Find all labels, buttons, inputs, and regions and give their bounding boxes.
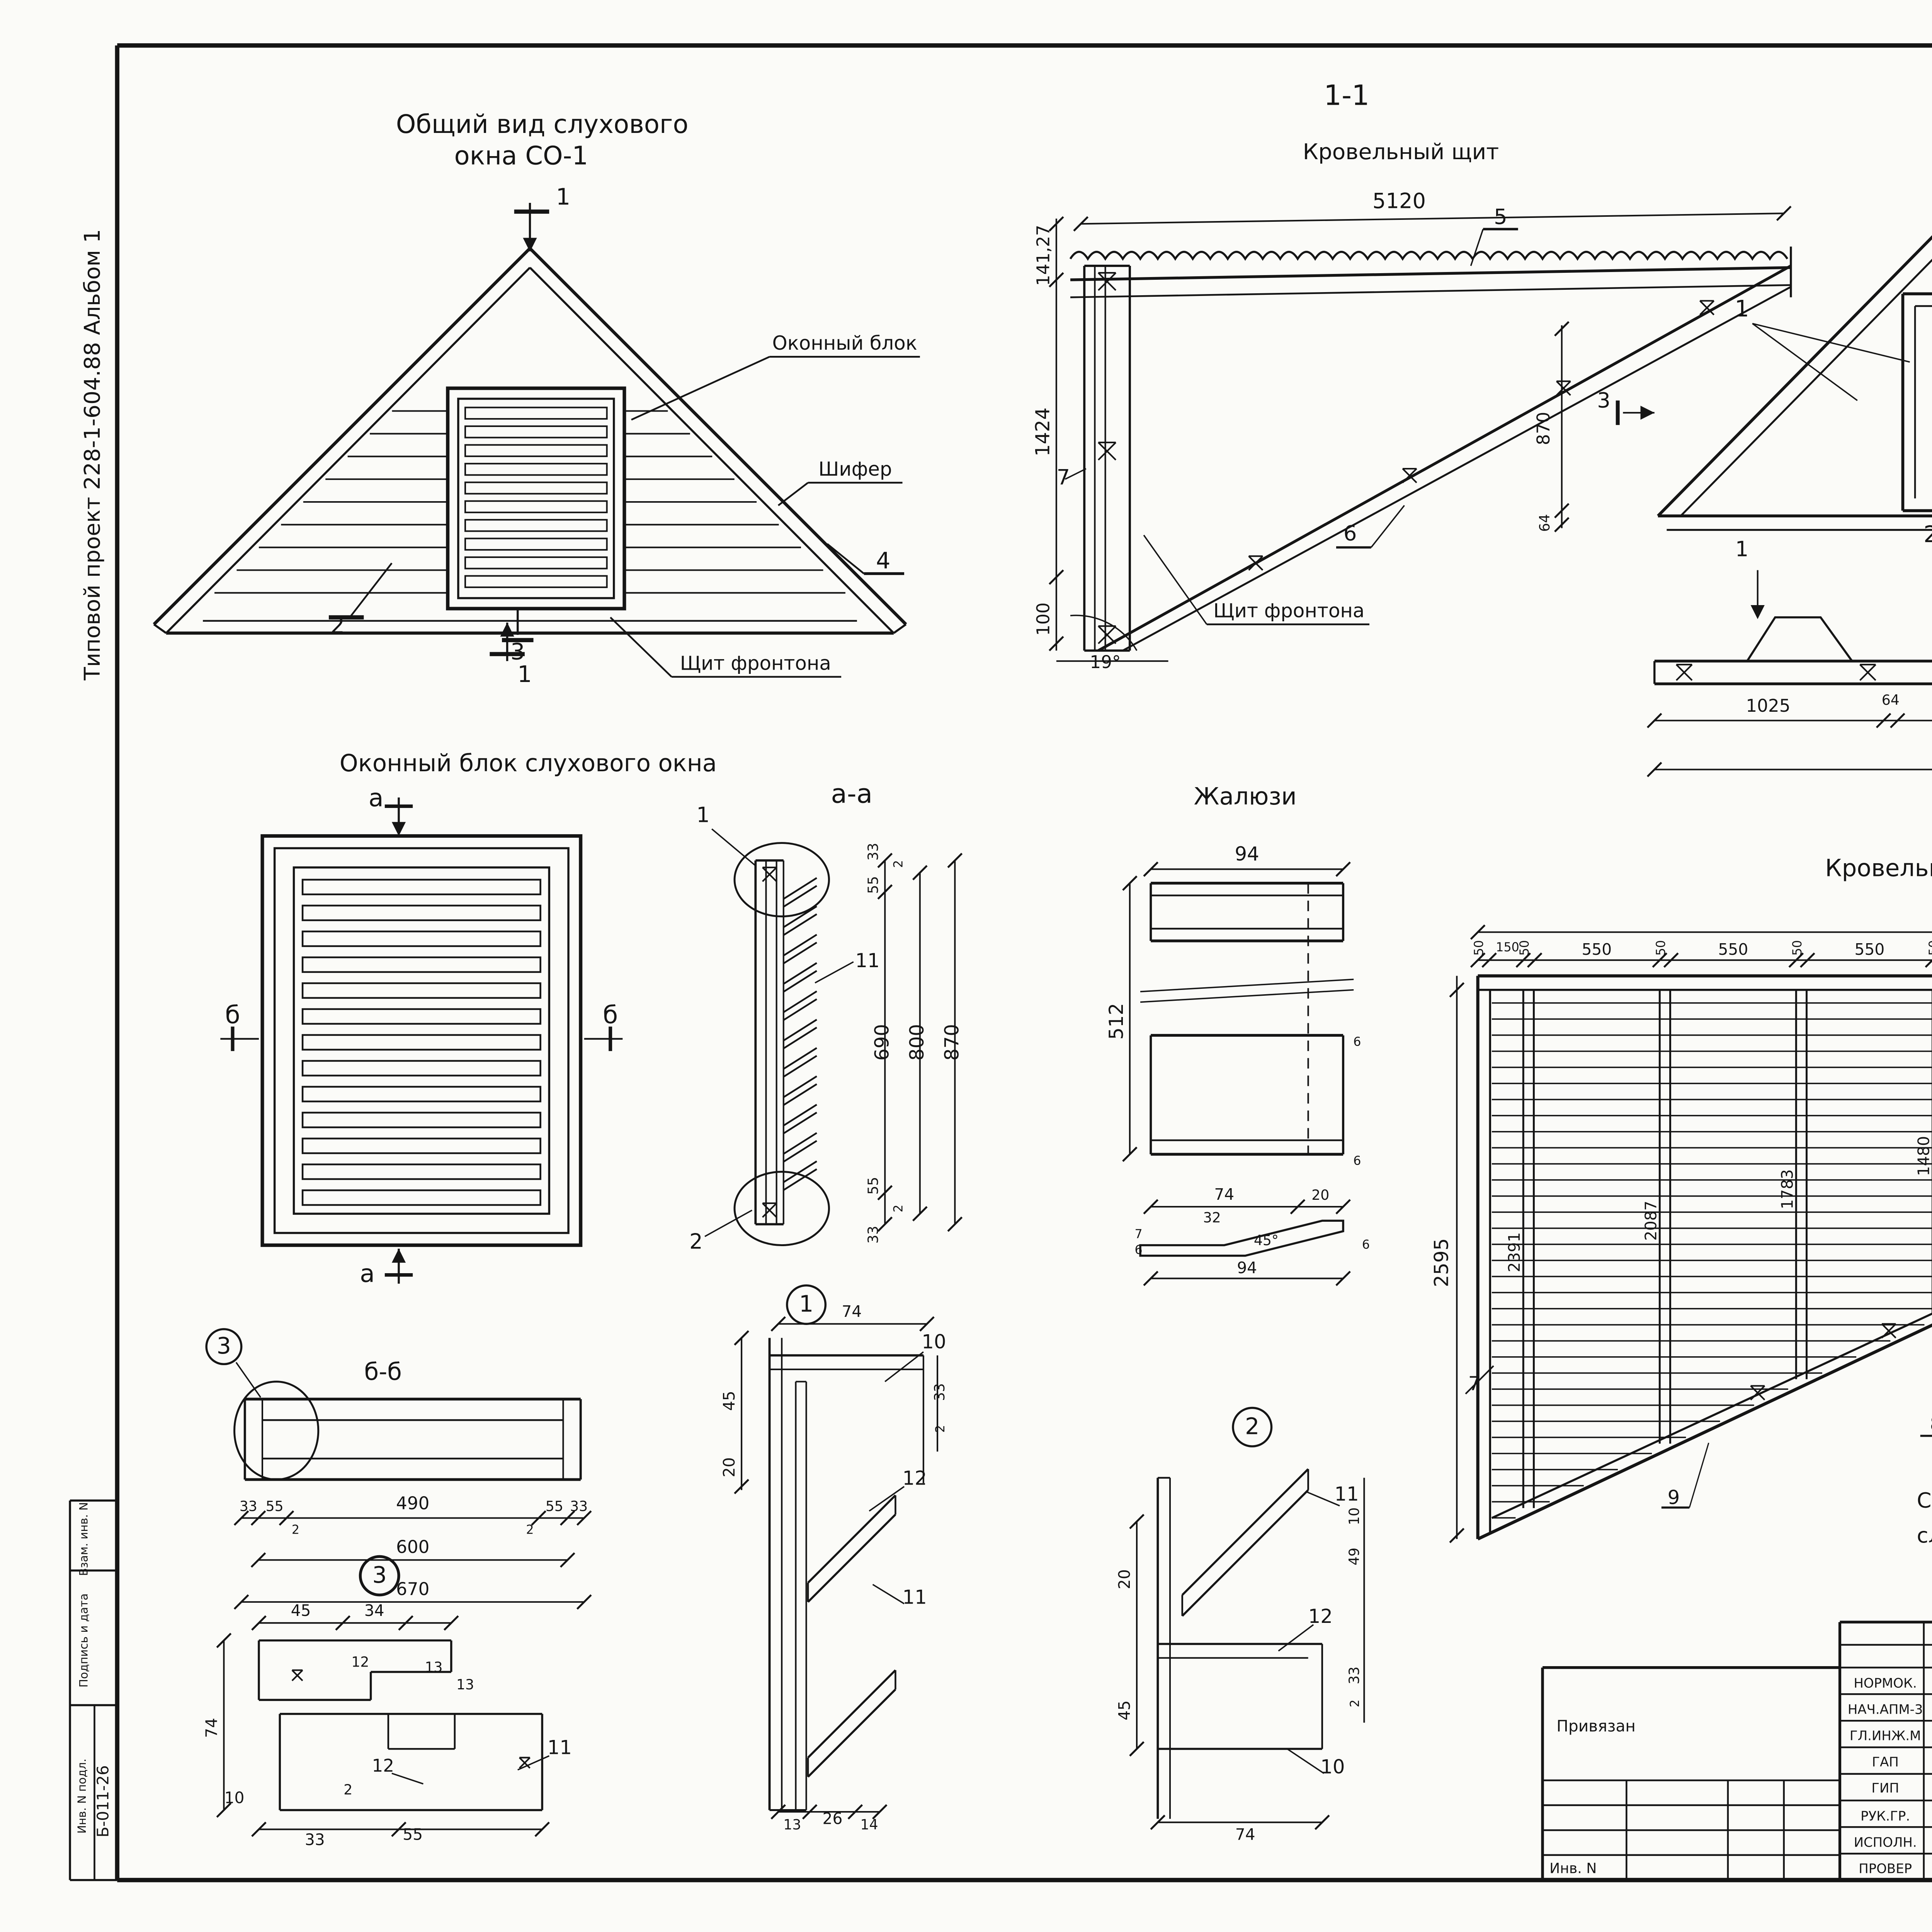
dim-label: 26: [823, 1810, 843, 1828]
dim-label: 20: [1311, 1187, 1329, 1203]
dim-label: 94: [1235, 843, 1259, 865]
roof-panel-title: Кровельный щит слухового окна ОС-1: [1825, 855, 1932, 882]
roof-panel-callout-label: Кровельный щит: [1303, 139, 1499, 165]
tb-role-3: ГАП: [1872, 1754, 1898, 1770]
dim-label: а: [360, 1259, 375, 1288]
dim-label: 2: [892, 1204, 906, 1212]
dim-label: б: [603, 1000, 618, 1029]
dim-label: 2: [892, 860, 906, 868]
dim-label: 10: [224, 1788, 245, 1807]
dim-label: 94: [1237, 1259, 1257, 1277]
tb-role-4: ГИП: [1871, 1781, 1899, 1796]
titleblock-inv-label: Инв. N: [1549, 1860, 1597, 1876]
dim-label: 50: [1791, 940, 1804, 956]
dim-label: 6: [1362, 1238, 1370, 1252]
dim-label: а: [369, 784, 384, 812]
dim-label: 49: [1346, 1548, 1362, 1565]
dim-label: 870: [1533, 412, 1554, 445]
dim-label: 11: [548, 1736, 572, 1759]
dim-label: 8: [1930, 1413, 1932, 1435]
dim-label: 45: [1115, 1701, 1134, 1721]
dim-label: 7: [1134, 1227, 1142, 1241]
drawing-sheet: 25 Типовой проект 228-1-604.88 Альбом 1 …: [0, 0, 1932, 1932]
dim-label: 33: [931, 1383, 948, 1401]
dim-label: 2595: [1430, 1238, 1453, 1287]
dim-label: 550: [1855, 940, 1885, 959]
dim-label: 12: [1308, 1605, 1333, 1628]
dim-label: 2: [344, 1781, 352, 1798]
margin-cell-replace-inv: Взам. инв. N: [77, 1502, 90, 1576]
dim-label: 670: [396, 1579, 429, 1599]
dim-label: 55: [546, 1498, 563, 1515]
drawing-geometry: [70, 46, 1932, 1913]
dim-label: 12: [351, 1653, 369, 1670]
dim-label: 12: [372, 1755, 394, 1776]
dim-label: 150: [1496, 940, 1519, 954]
blueprint-svg: 25 Типовой проект 228-1-604.88 Альбом 1 …: [0, 0, 1932, 1932]
dim-label: 50: [1518, 940, 1532, 956]
dim-label: 13: [783, 1816, 801, 1833]
dim-label: 55: [865, 876, 881, 894]
dim-label: 2: [689, 1230, 703, 1254]
tech-req-line3: Спецификацию расхода древесины на: [1917, 1488, 1932, 1512]
dim-label: 74: [842, 1302, 862, 1321]
general-view-title-2: окна СО-1: [454, 141, 588, 170]
dim-label: б: [225, 1000, 240, 1029]
fronton-callout-label-11: Щит фронтона: [1213, 600, 1364, 622]
dim-label: 1783: [1778, 1169, 1796, 1209]
dim-label: 2391: [1505, 1232, 1524, 1272]
dim-label: 600: [396, 1537, 429, 1557]
gv-fronton-label: Щит фронтона: [680, 652, 831, 674]
dim-label: 2: [526, 1523, 534, 1537]
dim-label: 11: [1334, 1483, 1359, 1505]
dim-label: 4: [876, 547, 890, 574]
dim-label: 11: [903, 1586, 927, 1608]
dim-label: 14: [860, 1816, 878, 1833]
dim-label: 2: [1348, 1699, 1362, 1707]
dim-label: 20: [1115, 1569, 1134, 1589]
dim-label: 512: [1105, 1003, 1128, 1040]
dim-label: 45: [291, 1601, 311, 1620]
dim-label: 50: [1654, 940, 1668, 956]
dim-label: 6: [1353, 1035, 1361, 1049]
dim-label: 1: [1735, 537, 1749, 561]
dim-label: 55: [865, 1177, 881, 1195]
dim-label: 10: [1320, 1755, 1345, 1778]
dim-label: 2087: [1641, 1201, 1660, 1241]
dim-label: 33: [865, 1226, 881, 1243]
dim-label: 9: [1668, 1486, 1680, 1509]
dim-label: 550: [1582, 940, 1612, 959]
dim-label: 3: [510, 638, 525, 665]
dim-label: 64: [1536, 514, 1553, 532]
tb-role-5: РУК.ГР.: [1861, 1809, 1910, 1824]
dim-label: 1: [799, 1291, 813, 1317]
dim-label: 870: [940, 1024, 963, 1061]
dim-label: 33: [305, 1830, 325, 1849]
dim-label: 33: [1346, 1667, 1362, 1684]
margin-project-stamp: Типовой проект 228-1-604.88 Альбом 1: [80, 229, 105, 681]
dim-label: 1424: [1032, 408, 1054, 457]
gv-window-block-label: Оконный блок: [772, 332, 917, 354]
dim-label: 45: [720, 1391, 738, 1411]
dim-label: 55: [266, 1498, 284, 1515]
dim-label: 2: [330, 612, 345, 638]
dim-label: 50: [1472, 940, 1486, 956]
section-a-a-title: а-а: [831, 779, 872, 809]
dim-label: 74: [1235, 1825, 1255, 1844]
section-1-1-title: 1-1: [1324, 80, 1369, 112]
dim-label: 1: [556, 184, 570, 210]
dim-label: 45°: [1254, 1232, 1279, 1249]
dim-label: 800: [906, 1024, 928, 1061]
dim-label: 2: [292, 1523, 299, 1537]
dim-label: 690: [871, 1024, 893, 1061]
dim-label: 3: [217, 1332, 231, 1359]
dim-label: 33: [570, 1498, 588, 1515]
section-b-b-title: б-б: [364, 1358, 402, 1386]
margin-doc-code: Б-011-26: [94, 1765, 112, 1837]
tb-role-1: НАЧ.АПМ-3: [1848, 1702, 1923, 1718]
dim-label: 1: [517, 661, 532, 687]
dim-label: 20: [720, 1457, 738, 1477]
dim-label: 1: [1735, 295, 1749, 322]
dim-label: 5: [1494, 204, 1507, 229]
tb-role-2: ГЛ.ИНЖ.М: [1850, 1728, 1921, 1743]
margin-cell-inv-no: Инв. N подл.: [75, 1759, 88, 1833]
dim-label: 13: [456, 1676, 474, 1693]
dim-label: 1: [696, 803, 710, 827]
dim-label: 7: [1057, 465, 1070, 490]
dim-label: 19°: [1090, 652, 1121, 672]
dim-label: 10: [1346, 1507, 1362, 1525]
dim-label: 1025: [1746, 696, 1790, 716]
dim-label: 1480: [1914, 1136, 1932, 1176]
tech-req-line4: слуховое окно СО-1 см. лист 24.: [1917, 1523, 1932, 1548]
dim-label: 11: [855, 949, 879, 972]
dim-label: 64: [1882, 692, 1900, 708]
dim-label: 2: [934, 1425, 947, 1433]
tb-role-0: НОРМОК.: [1854, 1676, 1917, 1691]
dim-label: 13: [425, 1659, 442, 1675]
dim-label: 5120: [1372, 189, 1426, 213]
dim-label: 6: [1353, 1154, 1361, 1168]
dim-label: 34: [364, 1601, 384, 1620]
dim-label: 141,27: [1033, 225, 1054, 286]
dim-label: 550: [1718, 940, 1748, 959]
dim-label: 74: [1214, 1185, 1234, 1204]
dim-label: 3: [372, 1561, 386, 1588]
dim-label: 3: [1597, 388, 1611, 413]
dim-label: 100: [1033, 602, 1054, 636]
gv-slate-label: Шифер: [818, 458, 892, 480]
dim-label: 33: [865, 843, 881, 861]
dim-label: 32: [1203, 1209, 1221, 1226]
dim-label: 74: [202, 1718, 221, 1738]
general-view-title-1: Общий вид слухового: [396, 110, 689, 139]
dim-label: 2: [1245, 1413, 1259, 1439]
dim-label: 55: [403, 1825, 423, 1844]
window-block-title: Оконный блок слухового окна: [340, 750, 717, 777]
dim-label: 33: [240, 1498, 257, 1515]
dim-label: 6: [1344, 521, 1357, 546]
titleblock-linked-label: Привязан: [1556, 1717, 1636, 1735]
dim-label: 2: [1923, 521, 1932, 548]
dim-label: 490: [396, 1493, 429, 1514]
dim-label: 12: [903, 1467, 927, 1490]
dim-label: 6: [1134, 1243, 1142, 1257]
louvers-title: Жалюзи: [1194, 783, 1297, 810]
dim-label: 10: [922, 1331, 946, 1353]
dim-label: 50: [1927, 940, 1932, 956]
dim-label: 7: [1468, 1372, 1481, 1395]
tb-role-6: ИСПОЛН.: [1854, 1835, 1917, 1850]
tb-role-7: ПРОВЕР: [1859, 1861, 1912, 1876]
margin-cell-sign-date: Подпись и дата: [77, 1594, 90, 1688]
